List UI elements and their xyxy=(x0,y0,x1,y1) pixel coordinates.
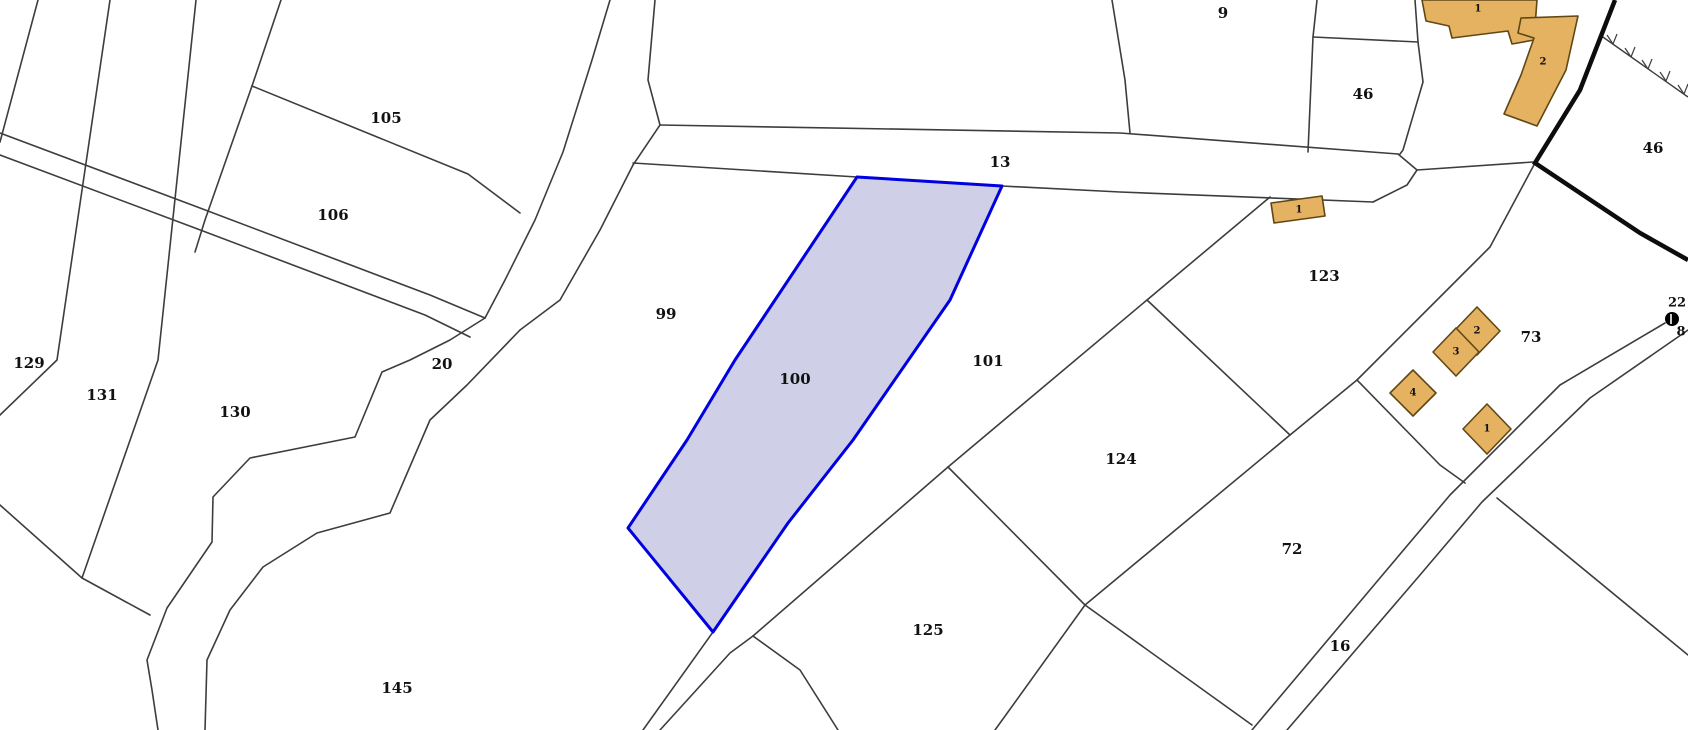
boundary-72-south xyxy=(1085,605,1252,725)
fence-tick-mark xyxy=(1631,47,1635,57)
parcel-label-72: 72 xyxy=(1282,540,1303,558)
parcel-label-46: 46 xyxy=(1643,139,1664,157)
strip-line-1 xyxy=(0,0,110,415)
boundary-125-east xyxy=(995,605,1085,730)
parcel-46-top-line xyxy=(1415,0,1418,42)
road-20-west-edge xyxy=(0,133,485,318)
strip-line-3 xyxy=(195,0,281,252)
boundary-125-west xyxy=(753,636,838,730)
building-number-label: 3 xyxy=(1453,347,1460,358)
road-north-left-edge xyxy=(485,0,610,318)
road-13-north-edge xyxy=(660,125,1398,154)
parcel-46-east-line xyxy=(1400,42,1423,154)
divider-105-106 xyxy=(252,86,520,213)
parcel-label-131: 131 xyxy=(86,386,117,404)
parcel-label-9: 9 xyxy=(1218,4,1228,22)
parcel-label-99: 99 xyxy=(656,305,677,323)
parcel-46-north-line xyxy=(1313,37,1418,42)
highlighted-parcel-100[interactable] xyxy=(628,177,1002,632)
parcel-label-124: 124 xyxy=(1105,450,1136,468)
parcel-label-123: 123 xyxy=(1308,267,1339,285)
boundary-southeast-branch xyxy=(1497,498,1688,655)
fence-tick-mark xyxy=(1648,59,1652,69)
lane-lower-edge xyxy=(660,636,753,730)
building-number-label: 1 xyxy=(1475,4,1482,15)
survey-point-label: 22 xyxy=(1668,296,1686,311)
building-number-label: 1 xyxy=(1484,424,1491,435)
boundary-101-123-124 xyxy=(948,197,1270,467)
fence-tick-mark xyxy=(1666,71,1670,81)
parcel-label-13: 13 xyxy=(990,153,1011,171)
parcel-label-100: 100 xyxy=(779,370,810,388)
boundary-123-124 xyxy=(1147,300,1290,435)
survey-point-label: 8 xyxy=(1676,325,1685,340)
parcel-label-130: 130 xyxy=(219,403,250,421)
parcel-label-46: 46 xyxy=(1353,85,1374,103)
boundary-123-72 xyxy=(1290,380,1357,435)
building-number-label: 1 xyxy=(1296,205,1303,216)
stream-left-bank xyxy=(147,318,485,730)
fence-tick-mark xyxy=(1684,84,1688,94)
building-number-label: 2 xyxy=(1474,326,1481,337)
strip-line-2 xyxy=(82,0,196,578)
road-13-end-tip xyxy=(1373,154,1417,202)
building-number-label: 2 xyxy=(1540,57,1547,68)
lane-upper-edge xyxy=(643,632,713,730)
road-north-right-edge xyxy=(520,0,660,330)
fence-line xyxy=(1600,35,1688,97)
map-canvas[interactable]: 1212341228105106129131130209910113946461… xyxy=(0,0,1688,730)
parcel-label-73: 73 xyxy=(1521,328,1542,346)
parcel-label-145: 145 xyxy=(381,679,412,697)
road-16-east-edge xyxy=(1287,330,1688,730)
road-20-east-edge xyxy=(0,155,470,337)
parcel-label-105: 105 xyxy=(370,109,401,127)
tip-to-boundary-line xyxy=(1417,162,1533,170)
parcel-label-129: 129 xyxy=(13,354,44,372)
boundary-124-125 xyxy=(948,467,1085,605)
building-number-label: 4 xyxy=(1410,388,1417,399)
strip-line-0 xyxy=(0,0,38,142)
parcel-9-west-line xyxy=(1112,0,1130,133)
parcel-label-125: 125 xyxy=(912,621,943,639)
road-16-west-edge xyxy=(1252,323,1665,730)
parcel-label-20: 20 xyxy=(432,355,453,373)
cadastral-map[interactable]: 1212341228105106129131130209910113946461… xyxy=(0,0,1688,730)
fence-tick-mark xyxy=(1613,34,1617,44)
parcel-label-16: 16 xyxy=(1330,637,1351,655)
stream-right-bank xyxy=(205,330,520,730)
parcel-label-101: 101 xyxy=(972,352,1003,370)
parcel-46-west-line xyxy=(1308,0,1317,152)
parcel-label-106: 106 xyxy=(317,206,348,224)
strip-end-line xyxy=(0,505,150,615)
